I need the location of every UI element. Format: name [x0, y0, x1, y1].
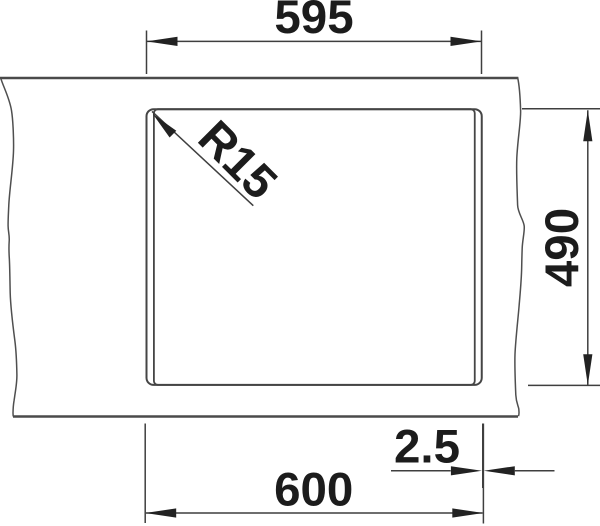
svg-text:490: 490 — [536, 208, 589, 287]
svg-text:R15: R15 — [188, 111, 287, 210]
svg-text:595: 595 — [274, 0, 353, 44]
svg-text:600: 600 — [274, 464, 353, 517]
svg-text:2.5: 2.5 — [394, 420, 460, 473]
